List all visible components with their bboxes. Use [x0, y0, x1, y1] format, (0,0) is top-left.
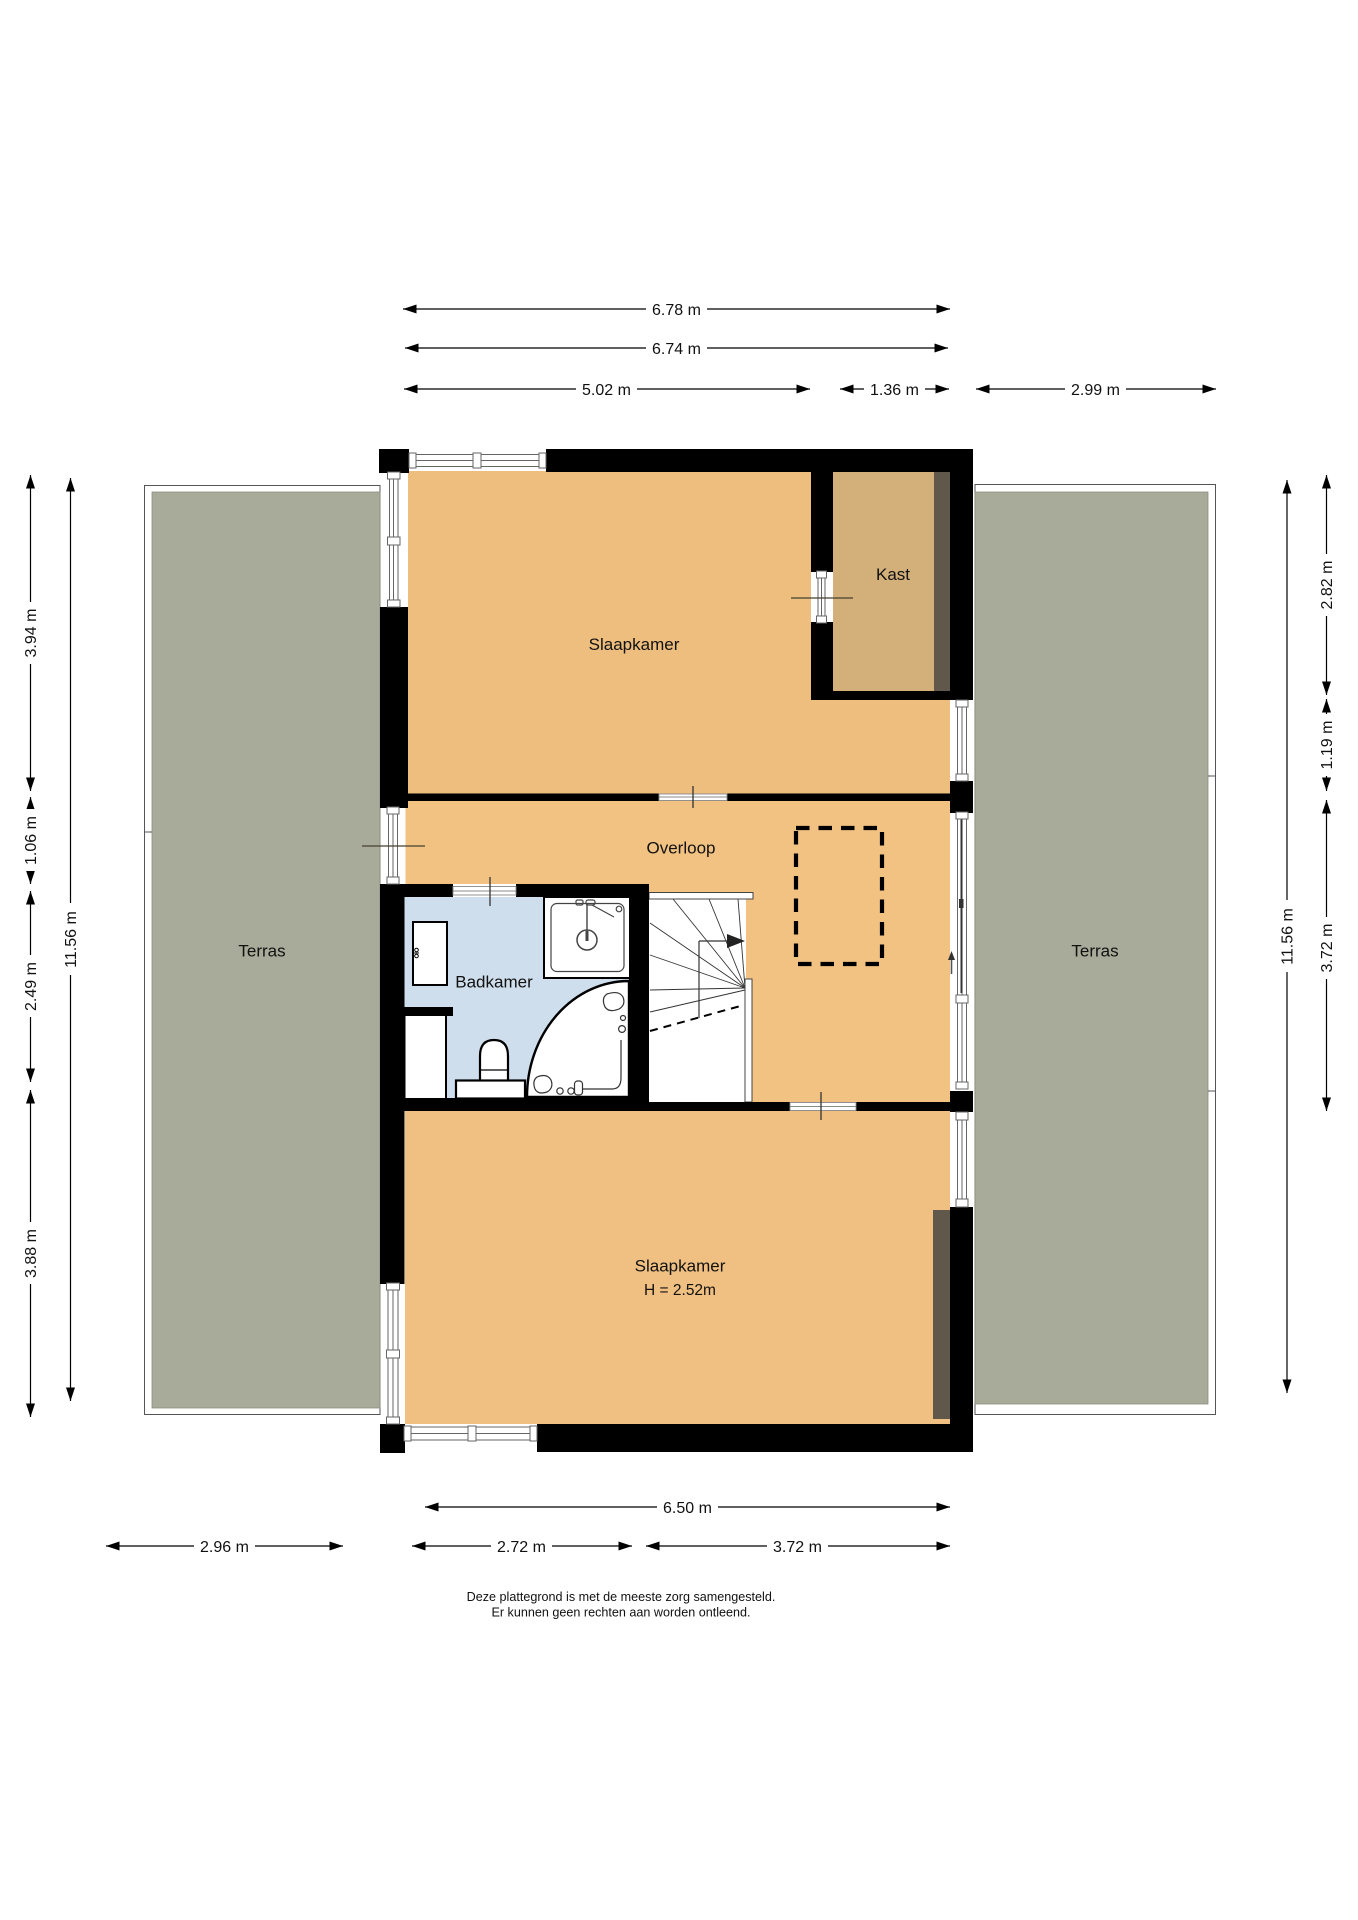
svg-text:2.96 m: 2.96 m — [200, 1539, 249, 1556]
svg-text:3.94 m: 3.94 m — [23, 609, 40, 658]
svg-text:3.72 m: 3.72 m — [1319, 924, 1336, 973]
svg-text:Slaapkamer: Slaapkamer — [635, 1257, 726, 1276]
svg-text:Er kunnen geen rechten aan wor: Er kunnen geen rechten aan worden ontlee… — [491, 1606, 750, 1620]
svg-text:3.72 m: 3.72 m — [773, 1539, 822, 1556]
svg-text:11.56 m: 11.56 m — [63, 911, 80, 968]
svg-text:5.02 m: 5.02 m — [582, 382, 631, 399]
svg-text:Overloop: Overloop — [647, 839, 716, 858]
svg-text:6.50 m: 6.50 m — [663, 1500, 712, 1517]
svg-text:2.99 m: 2.99 m — [1071, 382, 1120, 399]
svg-text:Badkamer: Badkamer — [455, 973, 533, 992]
svg-text:2.82 m: 2.82 m — [1319, 561, 1336, 610]
svg-text:11.56 m: 11.56 m — [1280, 908, 1297, 965]
svg-text:6.74 m: 6.74 m — [652, 341, 701, 358]
svg-text:Terras: Terras — [238, 942, 285, 961]
svg-text:Slaapkamer: Slaapkamer — [589, 635, 680, 654]
svg-text:2.72 m: 2.72 m — [497, 1539, 546, 1556]
svg-text:1.06 m: 1.06 m — [23, 816, 40, 865]
svg-text:6.78 m: 6.78 m — [652, 302, 701, 319]
svg-text:Deze plattegrond is met de mee: Deze plattegrond is met de meeste zorg s… — [467, 1590, 776, 1604]
svg-text:Terras: Terras — [1071, 942, 1118, 961]
svg-text:3.88 m: 3.88 m — [23, 1229, 40, 1278]
svg-text:Kast: Kast — [876, 565, 910, 584]
svg-text:1.19 m: 1.19 m — [1319, 721, 1336, 770]
svg-text:H = 2.52m: H = 2.52m — [644, 1282, 716, 1299]
svg-text:1.36 m: 1.36 m — [870, 382, 919, 399]
svg-text:2.49 m: 2.49 m — [23, 962, 40, 1011]
